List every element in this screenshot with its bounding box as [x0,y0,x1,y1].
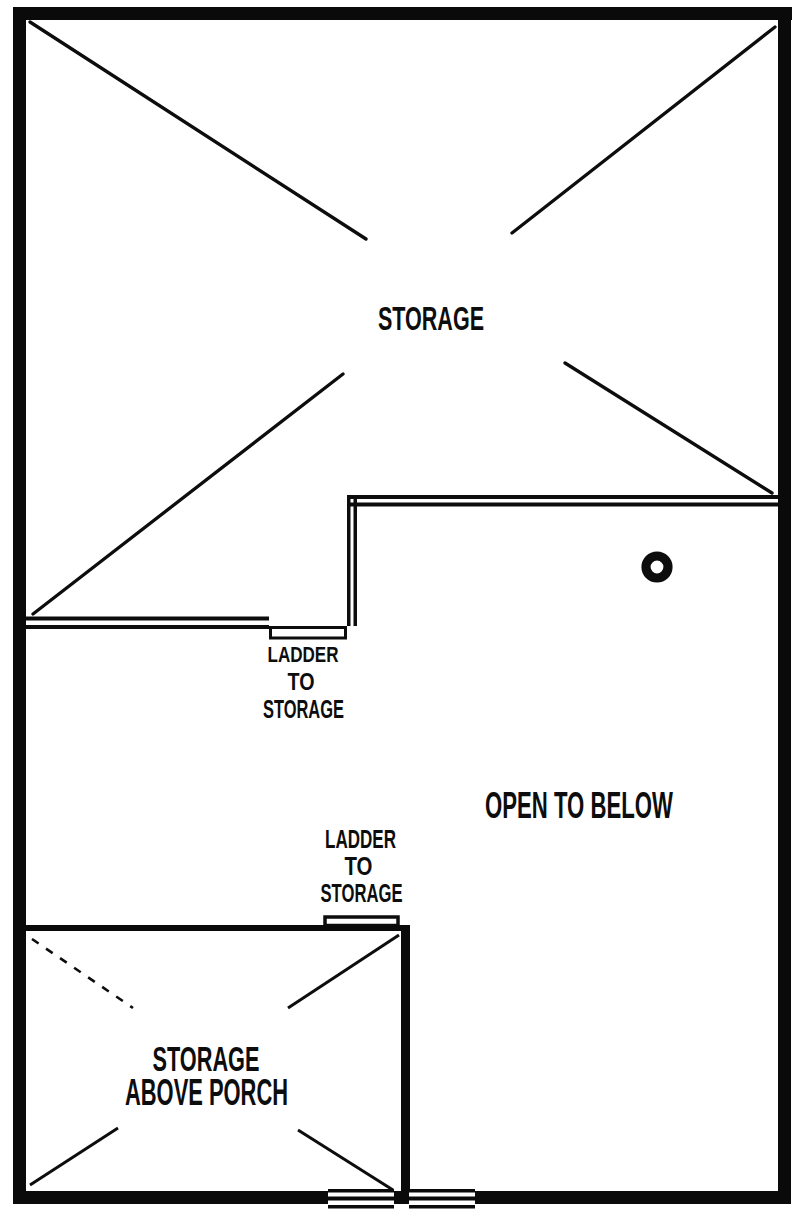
svg-text:ABOVE PORCH: ABOVE PORCH [125,1072,288,1113]
svg-text:OPEN TO BELOW: OPEN TO BELOW [485,785,673,826]
svg-text:TO: TO [288,669,315,695]
svg-text:STORAGE: STORAGE [378,299,484,337]
svg-text:STORAGE: STORAGE [321,878,403,908]
svg-text:LADDER: LADDER [325,824,396,854]
svg-text:TO: TO [345,851,373,881]
svg-text:LADDER: LADDER [268,642,339,667]
svg-text:STORAGE: STORAGE [263,695,344,723]
